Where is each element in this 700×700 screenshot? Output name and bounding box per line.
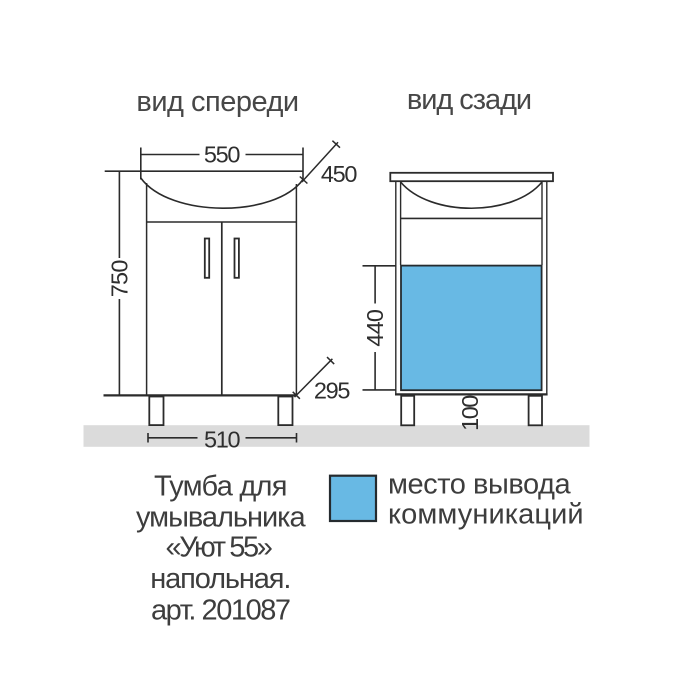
svg-text:место вывода: место вывода — [388, 469, 572, 501]
svg-text:вид сзади: вид сзади — [407, 84, 531, 116]
svg-text:«Уют 55»: «Уют 55» — [166, 532, 272, 564]
svg-text:295: 295 — [314, 377, 351, 403]
svg-text:арт. 201087: арт. 201087 — [151, 594, 290, 626]
svg-text:напольная.: напольная. — [150, 563, 290, 595]
svg-text:умывальника: умывальника — [136, 502, 306, 534]
svg-text:750: 750 — [106, 260, 132, 298]
svg-text:550: 550 — [204, 141, 241, 167]
svg-text:100: 100 — [457, 395, 483, 431]
svg-text:вид спереди: вид спереди — [136, 86, 298, 118]
svg-text:коммуникаций: коммуникаций — [388, 498, 584, 530]
svg-text:510: 510 — [204, 426, 241, 452]
svg-text:440: 440 — [362, 309, 388, 347]
svg-text:Тумба для: Тумба для — [154, 470, 287, 502]
svg-text:450: 450 — [321, 161, 358, 187]
